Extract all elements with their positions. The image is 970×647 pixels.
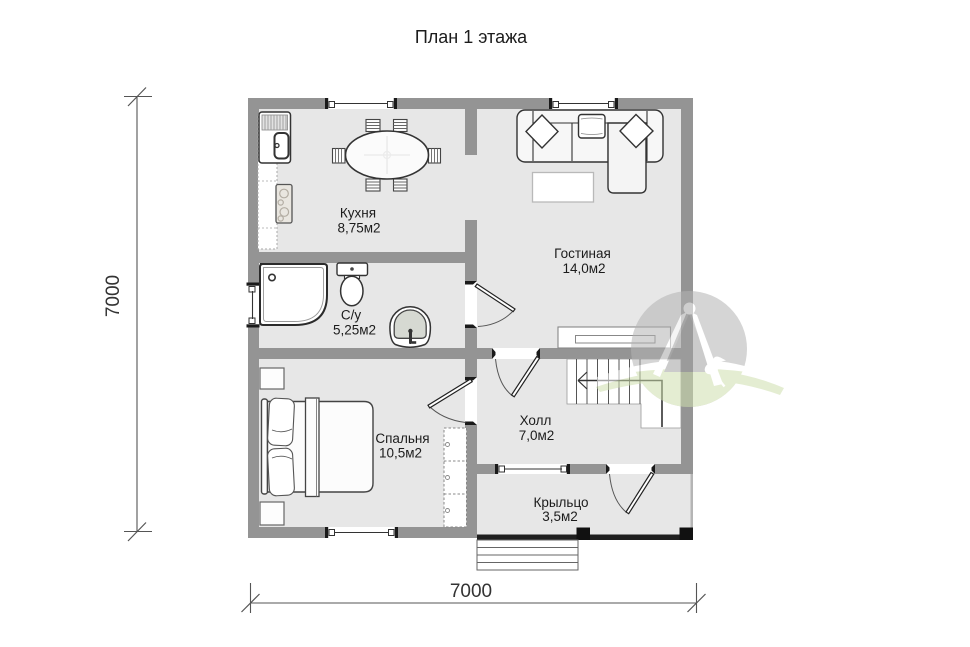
svg-text:7000: 7000 xyxy=(103,275,124,317)
svg-text:Крыльцо: Крыльцо xyxy=(533,495,588,510)
svg-text:7000: 7000 xyxy=(450,581,492,602)
svg-text:Кухня: Кухня xyxy=(340,206,376,221)
svg-text:8,75м2: 8,75м2 xyxy=(337,221,380,236)
svg-text:Холл: Холл xyxy=(520,413,552,428)
svg-text:7,0м2: 7,0м2 xyxy=(519,428,555,443)
svg-text:14,0м2: 14,0м2 xyxy=(562,261,605,276)
svg-text:План 1 этажа: План 1 этажа xyxy=(415,27,528,47)
svg-text:С/у: С/у xyxy=(341,308,362,323)
svg-text:Спальня: Спальня xyxy=(375,431,429,446)
svg-text:10,5м2: 10,5м2 xyxy=(379,446,422,461)
svg-text:3,5м2: 3,5м2 xyxy=(542,509,578,524)
svg-text:Гостиная: Гостиная xyxy=(554,246,611,261)
svg-text:5,25м2: 5,25м2 xyxy=(333,323,376,338)
